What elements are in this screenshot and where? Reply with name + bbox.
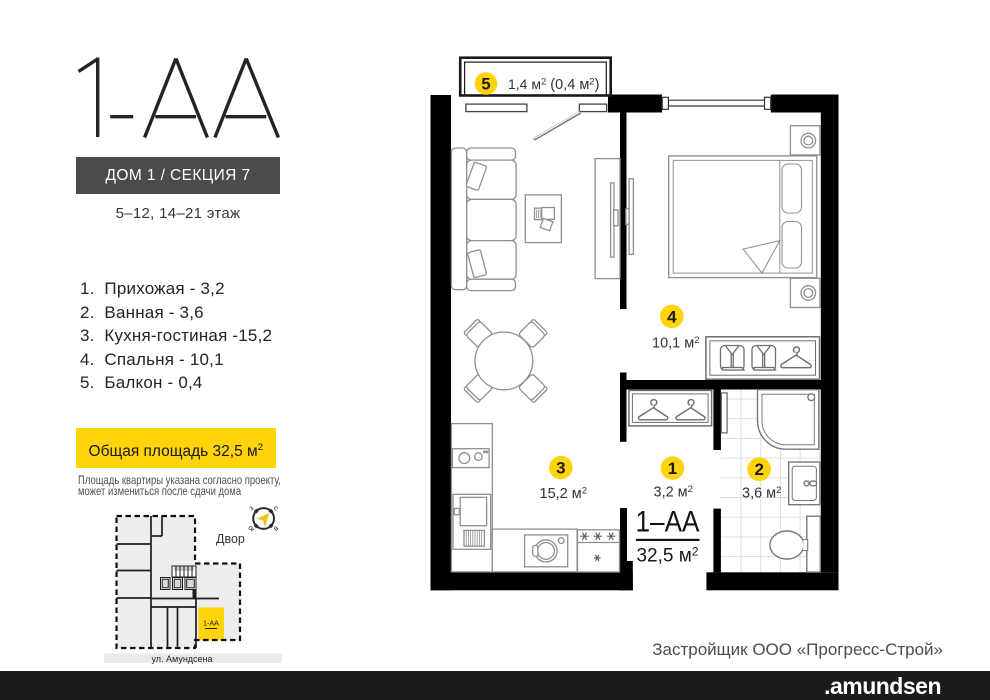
svg-text:1–АА: 1–АА bbox=[636, 506, 700, 539]
svg-text:1: 1 bbox=[668, 459, 677, 478]
svg-text:1,4 м2 (0,4 м2): 1,4 м2 (0,4 м2) bbox=[508, 76, 599, 93]
svg-text:32,5 м2: 32,5 м2 bbox=[636, 545, 698, 567]
svg-text:3,2 м2: 3,2 м2 bbox=[654, 484, 693, 501]
svg-text:Двор: Двор bbox=[216, 532, 245, 546]
svg-text:1-АА: 1-АА bbox=[203, 619, 219, 628]
svg-text:5: 5 bbox=[481, 75, 490, 93]
svg-text:4: 4 bbox=[667, 307, 677, 326]
svg-text:ул. Амундсена: ул. Амундсена bbox=[151, 654, 212, 664]
svg-text:3,6 м2: 3,6 м2 bbox=[742, 485, 781, 502]
svg-text:2: 2 bbox=[754, 460, 763, 479]
svg-text:15,2 м2: 15,2 м2 bbox=[540, 486, 588, 503]
svg-text:10,1 м2: 10,1 м2 bbox=[652, 335, 700, 352]
svg-text:3: 3 bbox=[556, 459, 565, 478]
